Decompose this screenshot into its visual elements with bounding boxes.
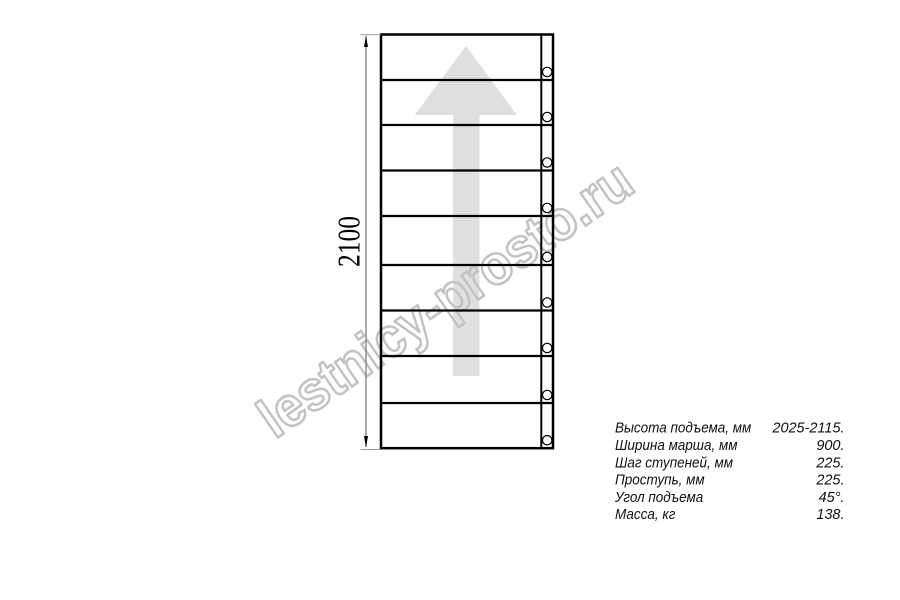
svg-text:Ширина марша, мм: Ширина марша, мм bbox=[615, 437, 738, 454]
svg-text:Масса, кг: Масса, кг bbox=[615, 507, 675, 524]
svg-text:225.: 225. bbox=[815, 455, 844, 471]
svg-text:45°.: 45°. bbox=[819, 490, 845, 506]
svg-text:Проступь, мм: Проступь, мм bbox=[615, 472, 705, 489]
svg-text:900.: 900. bbox=[816, 438, 844, 454]
svg-text:Шаг ступеней, мм: Шаг ступеней, мм bbox=[615, 455, 733, 472]
svg-text:lestnicy-prosto.ru: lestnicy-prosto.ru bbox=[246, 148, 644, 449]
svg-text:225.: 225. bbox=[815, 472, 844, 488]
svg-text:Высота подъема, мм: Высота подъема, мм bbox=[615, 420, 751, 437]
svg-text:2100: 2100 bbox=[331, 216, 366, 267]
svg-text:2025-2115.: 2025-2115. bbox=[771, 420, 844, 436]
svg-text:138.: 138. bbox=[816, 507, 844, 523]
svg-text:Угол подъема: Угол подъема bbox=[614, 489, 703, 506]
